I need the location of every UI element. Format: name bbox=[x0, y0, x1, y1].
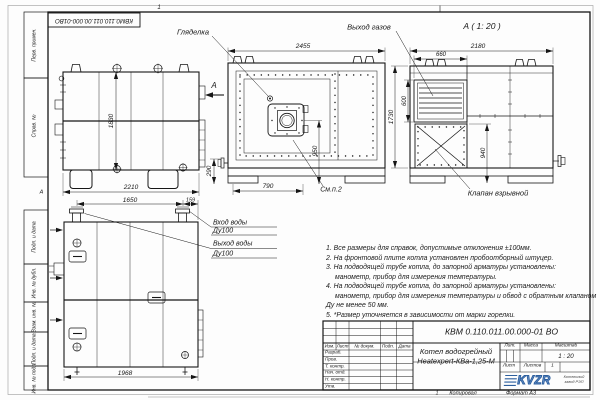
col-izm: Изм. bbox=[325, 345, 335, 350]
drawing-sheet: КВМ0.110.011.00.000-01ВО 1 Перв. примен.… bbox=[0, 0, 600, 400]
view-section-a bbox=[391, 31, 565, 189]
view-front bbox=[210, 36, 385, 195]
row-prov: Пров. bbox=[325, 358, 337, 363]
note-line: 4. На подводящей трубе котла, до запорно… bbox=[326, 284, 556, 291]
row-razrab: Разраб. bbox=[325, 351, 342, 356]
sheets-label: Листов bbox=[524, 365, 541, 370]
col-date: Дата bbox=[398, 345, 410, 350]
callout-water-outlet-dn: Ду100 bbox=[213, 250, 233, 257]
view-side bbox=[55, 64, 224, 197]
col-sign: Подп. bbox=[382, 345, 394, 350]
row-utv: Утв. bbox=[325, 384, 335, 389]
margin-cell-inv-podl: Инв. № подл. bbox=[32, 362, 37, 393]
mass-label: Масса bbox=[524, 345, 538, 350]
view-rear bbox=[49, 200, 277, 381]
note-line: манометр, прибор для измерения температу… bbox=[335, 275, 497, 282]
dim-front-burner: 950 bbox=[312, 146, 319, 157]
note-line: манометр, прибор для измерения температу… bbox=[335, 294, 596, 301]
scale-value: 1 : 20 bbox=[558, 353, 573, 359]
dim-front-foot: 790 bbox=[263, 184, 274, 191]
lit-label: Лит. bbox=[504, 345, 515, 350]
margin-cell-podp-data-1: Подп. и дата bbox=[32, 221, 37, 252]
callout-water-inlet: Вход воды bbox=[213, 219, 247, 226]
callout-gas-outlet: Выход газов bbox=[347, 23, 391, 31]
callout-sight-glass: Гляделка bbox=[177, 28, 209, 36]
margin-cell-perv-primen: Перв. примен. bbox=[32, 28, 37, 61]
logo-caption-line2: завод РЭП bbox=[565, 381, 584, 385]
note-line: 5. *Размер уточняется в зависимости от м… bbox=[326, 313, 515, 320]
dim-section-width: 2180 bbox=[471, 44, 485, 51]
callout-water-outlet: Выход воды bbox=[213, 241, 252, 248]
product-name-line1: Котел водогрейный bbox=[420, 348, 492, 356]
section-a-title: А ( 1: 20 ) bbox=[463, 22, 500, 31]
col-doc: № докум. bbox=[354, 345, 374, 350]
zone-number-top: 1 bbox=[157, 5, 160, 11]
row-n-kontr: Н. контр. bbox=[325, 378, 346, 383]
margin-cell-podp-data-2: Подп. и дата bbox=[32, 333, 37, 364]
dim-side-height: 1830 bbox=[109, 114, 116, 128]
row-nach-otd: Нач. отд. bbox=[325, 371, 346, 376]
dim-front-width: 2455 bbox=[296, 44, 310, 51]
logo-coil-icon bbox=[504, 376, 517, 386]
dim-louver-width: 660 bbox=[436, 52, 446, 58]
sheet-frame bbox=[8, 6, 593, 398]
dim-section-height: 1730 bbox=[388, 110, 395, 124]
zone-letter: А bbox=[40, 190, 44, 196]
callout-water-inlet-dn: Ду100 bbox=[213, 228, 233, 235]
dim-rear-width: 1968 bbox=[118, 370, 132, 377]
doc-number-stamp: КВМ0.110.011.00.000-01ВО bbox=[55, 17, 133, 23]
margin-cell-sprav: Справ. № bbox=[32, 115, 37, 138]
scale-label: Масштаб bbox=[555, 345, 577, 350]
drawing-linework bbox=[0, 0, 600, 400]
zone-number-bottom: 1 bbox=[436, 391, 439, 396]
note-line: 2. На фронтовой плите котла установлен п… bbox=[326, 256, 553, 263]
margin-cell-vzam-inv: Взам. инв. № bbox=[32, 302, 37, 333]
note-line: 1. Все размеры для справок, допустимые о… bbox=[326, 246, 531, 253]
dim-side-width: 2210 bbox=[124, 185, 138, 192]
company-logo: KVZR bbox=[517, 375, 550, 387]
sheets-value: 1 bbox=[551, 365, 554, 370]
product-name-line2: Heatexpert-КВа-1,25-М bbox=[417, 357, 494, 364]
note-line: 3. На подводящей трубе котла, до запорно… bbox=[326, 265, 556, 272]
margin-cell-inv-dubl: Инв. № дубл. bbox=[32, 268, 37, 299]
dim-louver-height: 600 bbox=[402, 96, 408, 106]
dim-rear-edge: 159 bbox=[186, 198, 195, 204]
dim-section-base: 940 bbox=[480, 148, 487, 159]
format-label: Формат А3 bbox=[506, 391, 536, 397]
sheet-label: Лист bbox=[503, 365, 515, 370]
callout-see-note: См.п.2 bbox=[320, 187, 342, 194]
callout-explosion-valve: Клапан взрывной bbox=[468, 189, 529, 197]
section-mark-a: А bbox=[211, 82, 216, 90]
dim-rear-pipes: 1650 bbox=[123, 198, 137, 205]
row-t-kontr: Т. контр. bbox=[325, 364, 345, 369]
col-list: Лист bbox=[337, 345, 349, 350]
dim-front-stub: 290 bbox=[207, 166, 214, 177]
doc-number: КВМ 0.110.011.00.000-01 ВО bbox=[445, 328, 558, 337]
note-line: Ду не менее 50 мм. bbox=[326, 303, 389, 310]
copied-label: Копировал bbox=[449, 391, 476, 397]
